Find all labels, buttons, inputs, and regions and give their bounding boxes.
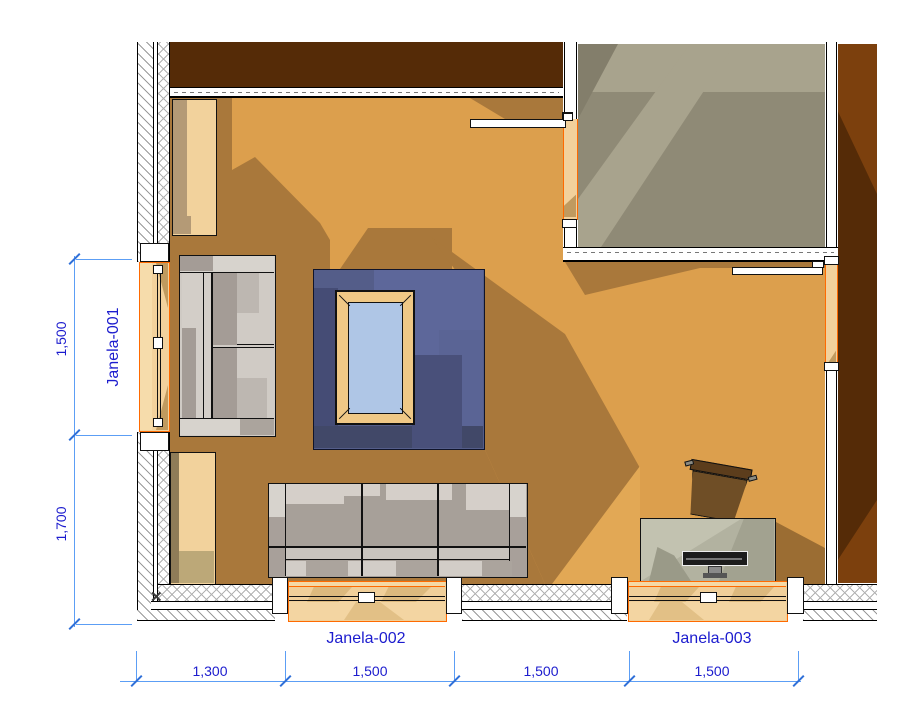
bottomwall-core-c [803, 601, 877, 610]
window-003-label[interactable]: Janela-003 [647, 630, 777, 648]
bottomwall-inner-b[interactable] [462, 584, 627, 601]
dim-value-left-2[interactable]: 1,700 [53, 494, 69, 554]
coffee-table[interactable] [335, 290, 415, 425]
seat-shade [213, 348, 237, 419]
sill-orange-line [629, 586, 786, 587]
armrest-light [510, 484, 526, 517]
armrest-light [269, 484, 285, 517]
mullion [153, 418, 163, 427]
shadow-above-rug [340, 228, 452, 269]
door-frame-top [824, 256, 839, 265]
window-002-frame-right [446, 577, 462, 614]
window-001-frame-top [140, 243, 169, 262]
partition-bar-right[interactable] [732, 267, 823, 275]
cabinet-lower-shade [179, 551, 214, 583]
dim-ext [136, 651, 137, 681]
dim-value-bottom-1[interactable]: 1,300 [175, 663, 245, 679]
shadow-top-right [470, 98, 565, 119]
sill-light [140, 263, 152, 430]
rightwall-door-opening[interactable] [825, 263, 838, 368]
sofa-left[interactable] [179, 255, 276, 437]
sofa-front-row2 [286, 561, 509, 576]
hotspot-marker[interactable]: ✕ [150, 590, 163, 605]
cushion-light [466, 484, 509, 510]
dim-ext [454, 651, 455, 681]
seat-shade [213, 273, 237, 345]
partition-bar-step [812, 261, 824, 268]
mullion [153, 337, 163, 349]
front-shade [482, 561, 512, 576]
window-002-frame-left [272, 577, 288, 614]
window-002-label[interactable]: Janela-002 [301, 630, 431, 648]
sofa-front-row1 [286, 548, 509, 560]
sofa-divider-2 [437, 484, 439, 576]
wall-dashline [567, 252, 834, 253]
dim-line-bottom[interactable] [120, 681, 801, 682]
dim-ext [76, 435, 132, 436]
backrest-line [203, 273, 204, 418]
cushion-light [286, 484, 344, 504]
window-003[interactable] [628, 581, 788, 622]
dim-ext [285, 651, 286, 681]
opening-shade [564, 189, 576, 217]
partition-bar-top[interactable] [470, 119, 566, 128]
window-002[interactable] [288, 581, 447, 622]
dim-ext [798, 651, 799, 681]
dim-value-left-1[interactable]: 1,500 [53, 309, 69, 369]
bottomwall-inner-a[interactable] [158, 584, 275, 601]
door-frame-bottom [824, 362, 839, 371]
dim-ext [76, 624, 132, 625]
dim-ext [76, 259, 132, 260]
leftwall-inner-lower [158, 432, 170, 584]
bottomwall-outer-c [803, 610, 877, 621]
bottomwall-core-b [462, 601, 627, 610]
door-frame-bottom [562, 219, 577, 228]
sofa-armrest-bottom [180, 418, 274, 435]
mullion [358, 592, 375, 603]
wall-top-brown[interactable] [170, 42, 563, 87]
dim-line-left[interactable] [74, 256, 75, 627]
table-glass [348, 302, 403, 414]
floor-plan-canvas: ✕ 1,500 1,700 Janela-001 1,300 1,500 1,5… [0, 0, 910, 722]
table-bevel-tr [400, 295, 411, 306]
window-001[interactable] [139, 262, 170, 432]
window-003-frame-right [787, 577, 804, 614]
window-003-frame-left [611, 577, 628, 614]
front-shade [306, 561, 348, 576]
window-001-frame-bottom [140, 432, 169, 451]
bottomwall-outer-b [462, 610, 627, 621]
leftwall-inner-upper [158, 42, 170, 262]
monitor-base [703, 573, 727, 578]
dim-value-bottom-2[interactable]: 1,500 [335, 663, 405, 679]
partition-bar-notch [563, 113, 573, 121]
monitor[interactable] [682, 551, 748, 566]
backrest-shade [182, 328, 196, 418]
window-001-label[interactable]: Janela-001 [104, 292, 124, 402]
sofa-armrest-top [180, 256, 274, 273]
sofa-bottom[interactable] [268, 483, 528, 578]
bottomwall-inner-c[interactable] [803, 584, 877, 601]
dim-ext [629, 651, 630, 681]
desk-dark [719, 519, 774, 581]
sofa-armrest-left [269, 484, 286, 576]
grayroom-bottom-wall[interactable] [563, 247, 838, 262]
cabinet-shade-notch [181, 216, 191, 234]
sofa-backrest [182, 273, 213, 418]
armrest-shade [180, 256, 213, 271]
armrest-shade [240, 419, 274, 435]
cabinet-bottom-left[interactable] [170, 452, 216, 585]
sofa-back-cushions [286, 484, 509, 546]
seat-shade2 [237, 378, 267, 419]
dim-value-bottom-4[interactable]: 1,500 [677, 663, 747, 679]
cushion-light [386, 484, 452, 500]
sofa-divider-1 [361, 484, 363, 576]
cabinet-top-left[interactable] [172, 99, 217, 236]
wall-top-dashline [174, 92, 559, 93]
mullion [700, 592, 717, 603]
wall-top-edge-line [170, 96, 565, 99]
bottomwall-core-a [151, 601, 275, 610]
grayroom-door-opening[interactable] [563, 119, 578, 220]
sill-orange-line [289, 586, 445, 587]
front-shade [396, 561, 438, 576]
bottomwall-outer-a [137, 610, 275, 621]
seat-shade2 [237, 273, 259, 313]
table-bevel-tl [339, 295, 350, 306]
sofa-seat-1 [213, 273, 274, 345]
cabinet-shade [171, 453, 179, 583]
leftwall-outer-upper[interactable] [137, 42, 153, 262]
desk[interactable] [640, 518, 776, 583]
mullion [153, 265, 163, 274]
sofa-seat-2 [213, 347, 274, 418]
rug-dark-mid [412, 355, 462, 448]
monitor-line [686, 558, 742, 560]
cabinet-shade [173, 100, 187, 234]
dim-value-bottom-3[interactable]: 1,500 [506, 663, 576, 679]
